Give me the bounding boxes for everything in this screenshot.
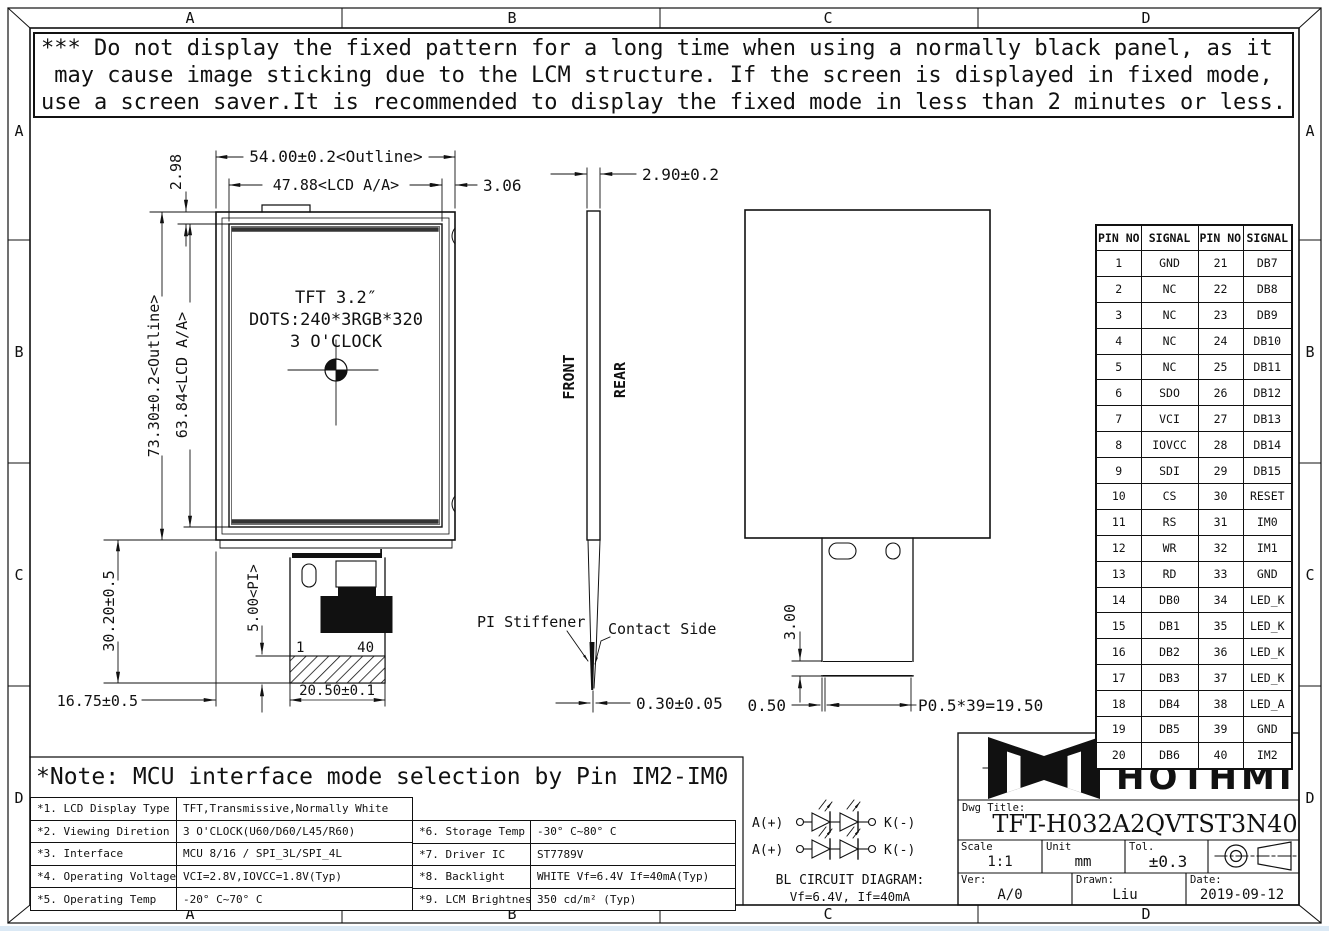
scale-value: 1:1: [987, 854, 1012, 870]
dim-pad-pitch: P0.5*39=19.50: [918, 696, 1043, 715]
pin-table-row: 19 DB5 39 GND: [1096, 717, 1292, 743]
pin-no-cell: 36: [1198, 639, 1243, 665]
pin-table-row: 10 CS 30 RESET: [1096, 484, 1292, 510]
signal-cell: IOVCC: [1141, 432, 1198, 458]
spec-table-right: *6. Storage Temp -30° C~80° C *7. Driver…: [412, 820, 736, 911]
zone-right-d: D: [1305, 789, 1314, 807]
pin-table-row: 13 RD 33 GND: [1096, 561, 1292, 587]
spec-value: WHITE Vf=6.4V If=40mA(Typ): [531, 866, 736, 889]
pin-no-cell: 30: [1198, 484, 1243, 510]
dim-pi-height: 5.00<PI>: [246, 564, 262, 631]
pin-no-header-2: PIN NO.: [1198, 225, 1243, 251]
led-row-2: [797, 827, 876, 859]
pin1-label: 1: [296, 640, 304, 656]
signal-cell: DB3: [1141, 665, 1198, 691]
pin-no-cell: 9: [1096, 458, 1141, 484]
zone-left-b: B: [14, 343, 23, 361]
pin-no-cell: 21: [1198, 251, 1243, 277]
pin-table-row: 5 NC 25 DB11: [1096, 354, 1292, 380]
pin-no-cell: 14: [1096, 587, 1141, 613]
signal-cell: LED_A: [1243, 691, 1292, 717]
spec-row: *1. LCD Display Type TFT,Transmissive,No…: [31, 798, 413, 821]
warning-line-3: use a screen saver.It is recommended to …: [35, 89, 1292, 116]
signal-cell: LED_K: [1243, 613, 1292, 639]
pin-table-row: 12 WR 32 IM1: [1096, 535, 1292, 561]
dim-aa-width: 47.88<LCD A/A>: [273, 176, 399, 194]
pin-table-row: 7 VCI 27 DB13: [1096, 406, 1292, 432]
signal-cell: DB10: [1243, 328, 1292, 354]
spec-table-left: *1. LCD Display Type TFT,Transmissive,No…: [30, 797, 413, 911]
spec-row: *7. Driver IC ST7789V: [413, 843, 736, 866]
spec-value: VCI=2.8V,IOVCC=1.8V(Typ): [177, 865, 413, 888]
led-row-1: [797, 800, 876, 832]
signal-cell: SDO: [1141, 380, 1198, 406]
dim-outline-width: 54.00±0.2<Outline>: [249, 147, 422, 166]
scale-label: Scale: [961, 841, 993, 853]
front-side-label: FRONT: [560, 354, 578, 399]
pin-no-cell: 13: [1096, 561, 1141, 587]
pin-no-cell: 6: [1096, 380, 1141, 406]
rear-view-texts: 3.00 0.50 P0.5*39=19.50: [747, 604, 1043, 715]
pin-no-cell: 16: [1096, 639, 1141, 665]
pin-no-cell: 37: [1198, 665, 1243, 691]
spec-row: *8. Backlight WHITE Vf=6.4V If=40mA(Typ): [413, 866, 736, 889]
signal-cell: LED_K: [1243, 587, 1292, 613]
tol-value: ±0.3: [1149, 852, 1188, 871]
pin-table-row: 11 RS 31 IM0: [1096, 509, 1292, 535]
rear-side-label: REAR: [611, 361, 629, 398]
pin-no-cell: 8: [1096, 432, 1141, 458]
pin-table-row: 15 DB1 35 LED_K: [1096, 613, 1292, 639]
zone-right-c: C: [1305, 566, 1314, 584]
spec-label: *2. Viewing Diretion: [31, 820, 177, 843]
pin-no-cell: 3: [1096, 302, 1141, 328]
pin-no-cell: 19: [1096, 717, 1141, 743]
anode-label-2: A(+): [752, 843, 783, 858]
dim-edge-gap: 0.50: [747, 696, 786, 715]
pin-no-cell: 24: [1198, 328, 1243, 354]
pin-table-row: 8 IOVCC 28 DB14: [1096, 432, 1292, 458]
pin-no-cell: 11: [1096, 509, 1141, 535]
signal-cell: GND: [1243, 717, 1292, 743]
dim-tail-width: 20.50±0.1: [299, 683, 375, 699]
pin-no-cell: 10: [1096, 484, 1141, 510]
spec-value: MCU 8/16 / SPI_3L/SPI_4L: [177, 843, 413, 866]
bl-caption-1: BL CIRCUIT DIAGRAM:: [776, 873, 925, 888]
signal-cell: DB2: [1141, 639, 1198, 665]
panel-clock-label: 3 O'CLOCK: [290, 332, 383, 352]
contact-side-callout: Contact Side: [608, 620, 716, 638]
signal-cell: IM1: [1243, 535, 1292, 561]
pin-table-row: 16 DB2 36 LED_K: [1096, 639, 1292, 665]
mcu-note: *Note: MCU interface mode selection by P…: [36, 759, 742, 796]
pin-no-cell: 29: [1198, 458, 1243, 484]
signal-cell: GND: [1243, 561, 1292, 587]
zone-top-c: C: [823, 9, 832, 27]
date-value: 2019-09-12: [1200, 887, 1284, 903]
panel-size-label: TFT 3.2″: [295, 288, 377, 308]
signal-cell: LED_K: [1243, 665, 1292, 691]
warning-note: *** Do not display the fixed pattern for…: [33, 32, 1294, 118]
spec-label: *7. Driver IC: [413, 843, 531, 866]
signal-cell: DB13: [1243, 406, 1292, 432]
pin-no-cell: 2: [1096, 276, 1141, 302]
spec-label: *4. Operating Voltage: [31, 865, 177, 888]
signal-cell: IM2: [1243, 742, 1292, 768]
spec-label: *6. Storage Temp: [413, 821, 531, 844]
projection-symbol: [1215, 842, 1297, 870]
spec-value: -30° C~80° C: [531, 821, 736, 844]
signal-cell: NC: [1141, 276, 1198, 302]
spec-row: *5. Operating Temp -20° C~70° C: [31, 888, 413, 911]
signal-cell: WR: [1141, 535, 1198, 561]
signal-cell: IM0: [1243, 509, 1292, 535]
signal-cell: GND: [1141, 251, 1198, 277]
pin-no-cell: 27: [1198, 406, 1243, 432]
warning-line-2: may cause image sticking due to the LCM …: [35, 62, 1292, 89]
dim-outline-height: 73.30±0.2<Outline>: [145, 295, 163, 458]
anode-label-1: A(+): [752, 816, 783, 831]
spec-value: 3 O'CLOCK(U60/D60/L45/R60): [177, 820, 413, 843]
spec-row: *4. Operating Voltage VCI=2.8V,IOVCC=1.8…: [31, 865, 413, 888]
unit-value: mm: [1075, 854, 1092, 870]
signal-cell: DB4: [1141, 691, 1198, 717]
dim-thickness: 2.90±0.2: [642, 165, 719, 184]
pin-table-row: 9 SDI 29 DB15: [1096, 458, 1292, 484]
zone-left-c: C: [14, 566, 23, 584]
pin-no-cell: 4: [1096, 328, 1141, 354]
pin-no-cell: 1: [1096, 251, 1141, 277]
signal-cell: NC: [1141, 328, 1198, 354]
spec-value: -20° C~70° C: [177, 888, 413, 911]
pin-no-cell: 34: [1198, 587, 1243, 613]
pin-no-cell: 18: [1096, 691, 1141, 717]
signal-cell: DB1: [1141, 613, 1198, 639]
ver-label: Ver:: [961, 874, 986, 886]
signal-cell: RS: [1141, 509, 1198, 535]
pin-table-header: PIN NO. SIGNAL PIN NO. SIGNAL: [1096, 225, 1292, 251]
zone-right-b: B: [1305, 343, 1314, 361]
zone-left-d: D: [14, 789, 23, 807]
spec-label: *5. Operating Temp: [31, 888, 177, 911]
signal-cell: DB14: [1243, 432, 1292, 458]
dim-tail-offset: 16.75±0.5: [57, 692, 138, 710]
zone-top-b: B: [507, 9, 516, 27]
dim-tail-height: 30.20±0.5: [100, 570, 118, 651]
screenshot-bottom-edge: [0, 926, 1329, 931]
pin-no-cell: 12: [1096, 535, 1141, 561]
pin-table-row: 2 NC 22 DB8: [1096, 276, 1292, 302]
signal-cell: CS: [1141, 484, 1198, 510]
spec-label: *9. LCM Brightness: [413, 888, 531, 911]
signal-cell: SDI: [1141, 458, 1198, 484]
signal-cell: DB7: [1243, 251, 1292, 277]
pin-table-row: 18 DB4 38 LED_A: [1096, 691, 1292, 717]
pin40-label: 40: [357, 640, 374, 656]
spec-value: 350 cd/m² (Typ): [531, 888, 736, 911]
pin-table-row: 1 GND 21 DB7: [1096, 251, 1292, 277]
date-label: Date:: [1190, 874, 1222, 886]
spec-row: *2. Viewing Diretion 3 O'CLOCK(U60/D60/L…: [31, 820, 413, 843]
pin-no-cell: 31: [1198, 509, 1243, 535]
pin-no-cell: 38: [1198, 691, 1243, 717]
pin-no-cell: 33: [1198, 561, 1243, 587]
cathode-label-2: K(-): [884, 843, 915, 858]
pin-table-row: 4 NC 24 DB10: [1096, 328, 1292, 354]
zone-top-d: D: [1141, 9, 1150, 27]
pin-no-cell: 17: [1096, 665, 1141, 691]
spec-label: *3. Interface: [31, 843, 177, 866]
zone-bottom-d: D: [1141, 905, 1150, 923]
bl-caption-2: Vf=6.4V, If=40mA: [790, 889, 911, 904]
signal-cell: NC: [1141, 302, 1198, 328]
pin-no-header-1: PIN NO.: [1096, 225, 1141, 251]
signal-cell: DB0: [1141, 587, 1198, 613]
spec-label: *8. Backlight: [413, 866, 531, 889]
drawn-label: Drawn:: [1076, 874, 1114, 886]
signal-header-2: SIGNAL: [1243, 225, 1292, 251]
dim-border-right: 3.06: [483, 176, 522, 195]
pin-no-cell: 5: [1096, 354, 1141, 380]
spec-value: ST7789V: [531, 843, 736, 866]
dim-tip-thickness: 0.30±0.05: [636, 694, 723, 713]
signal-cell: NC: [1141, 354, 1198, 380]
pin-no-cell: 39: [1198, 717, 1243, 743]
pin-table-row: 3 NC 23 DB9: [1096, 302, 1292, 328]
pin-no-cell: 28: [1198, 432, 1243, 458]
dim-pad-height: 3.00: [781, 604, 799, 640]
zone-left-a: A: [14, 122, 23, 140]
spec-value: TFT,Transmissive,Normally White: [177, 798, 413, 821]
signal-cell: DB9: [1243, 302, 1292, 328]
pin-no-cell: 25: [1198, 354, 1243, 380]
pin-table-row: 6 SDO 26 DB12: [1096, 380, 1292, 406]
pin-no-cell: 26: [1198, 380, 1243, 406]
zone-right-a: A: [1305, 122, 1314, 140]
panel-dots-label: DOTS:240*3RGB*320: [249, 310, 423, 330]
drawing-sheet: A B C D A B C D A B C D A B C D: [0, 0, 1329, 931]
pin-table-row: 17 DB3 37 LED_K: [1096, 665, 1292, 691]
signal-cell: DB15: [1243, 458, 1292, 484]
pin-no-cell: 40: [1198, 742, 1243, 768]
pin-no-cell: 32: [1198, 535, 1243, 561]
cathode-label-1: K(-): [884, 816, 915, 831]
unit-label: Unit: [1046, 841, 1071, 853]
signal-cell: DB5: [1141, 717, 1198, 743]
dwg-title-value: TFT-H032A2QVTST3N40: [992, 810, 1297, 838]
pin-table-row: 20 DB6 40 IM2: [1096, 742, 1292, 768]
pin-no-cell: 20: [1096, 742, 1141, 768]
zone-top-a: A: [185, 9, 194, 27]
drawn-value: Liu: [1112, 887, 1137, 903]
pin-no-cell: 7: [1096, 406, 1141, 432]
bl-circuit-texts: A(+) K(-) A(+) K(-) BL CIRCUIT DIAGRAM: …: [752, 816, 924, 904]
pin-no-cell: 35: [1198, 613, 1243, 639]
signal-cell: DB6: [1141, 742, 1198, 768]
pin-table: PIN NO. SIGNAL PIN NO. SIGNAL 1 GND 21 D…: [1095, 224, 1293, 770]
pi-stiffener-callout: PI Stiffener: [477, 613, 585, 631]
signal-cell: DB11: [1243, 354, 1292, 380]
signal-cell: LED_K: [1243, 639, 1292, 665]
pin-table-row: 14 DB0 34 LED_K: [1096, 587, 1292, 613]
signal-cell: RD: [1141, 561, 1198, 587]
signal-cell: RESET: [1243, 484, 1292, 510]
zone-bottom-c: C: [823, 905, 832, 923]
ver-value: A/0: [997, 887, 1022, 903]
signal-cell: DB8: [1243, 276, 1292, 302]
bl-circuit: [797, 800, 876, 859]
signal-cell: VCI: [1141, 406, 1198, 432]
pin-no-cell: 22: [1198, 276, 1243, 302]
dim-aa-height: 63.84<LCD A/A>: [173, 312, 191, 438]
spec-row: *9. LCM Brightness 350 cd/m² (Typ): [413, 888, 736, 911]
warning-line-1: *** Do not display the fixed pattern for…: [35, 35, 1292, 62]
spec-label: *1. LCD Display Type: [31, 798, 177, 821]
pin-no-cell: 23: [1198, 302, 1243, 328]
signal-cell: DB12: [1243, 380, 1292, 406]
pin-no-cell: 15: [1096, 613, 1141, 639]
hothmi-logo-icon: [983, 737, 1105, 799]
dim-border-top: 2.98: [167, 154, 185, 190]
center-mark: [288, 340, 378, 425]
spec-row: *3. Interface MCU 8/16 / SPI_3L/SPI_4L: [31, 843, 413, 866]
signal-header-1: SIGNAL: [1141, 225, 1198, 251]
spec-row: *6. Storage Temp -30° C~80° C: [413, 821, 736, 844]
